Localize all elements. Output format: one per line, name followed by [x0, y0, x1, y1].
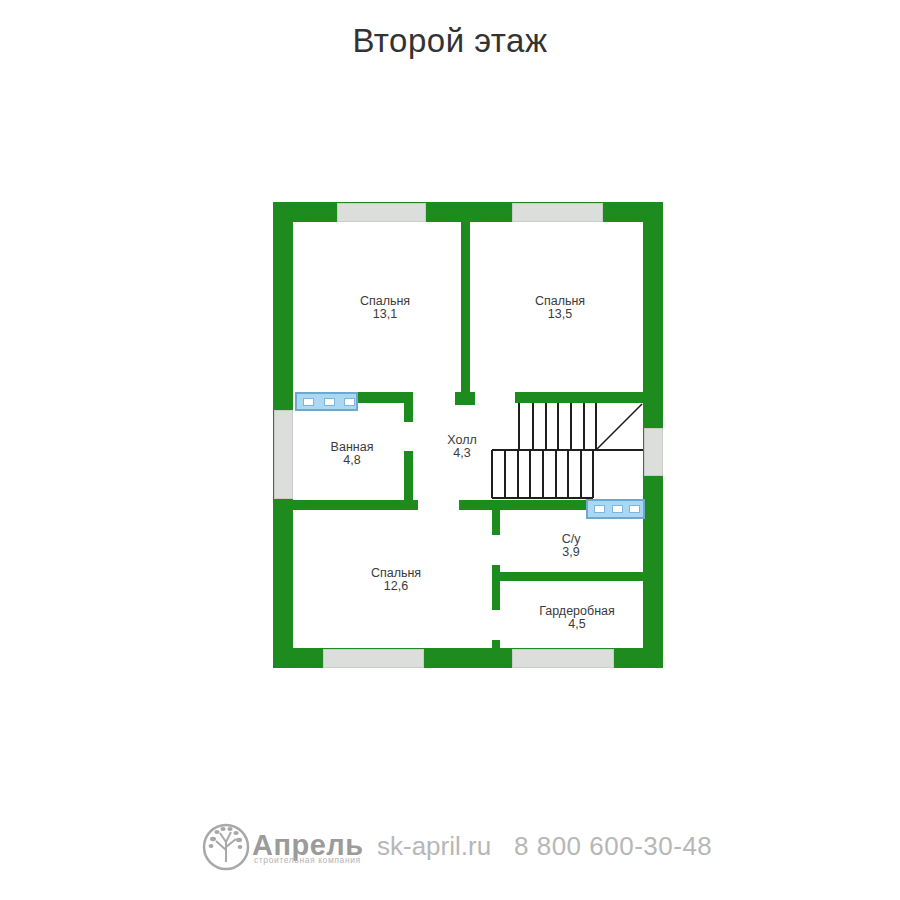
room-area: 13,5 [535, 308, 585, 321]
room-area: 4,8 [331, 454, 374, 467]
room-label-bathroom: Ванная 4,8 [331, 441, 374, 467]
stairs [492, 403, 643, 498]
room-label-wc: С/у 3,9 [562, 533, 581, 559]
room-label-bedroom-1: Спальня 13,1 [360, 295, 410, 321]
room-label-bedroom-2: Спальня 13,5 [535, 295, 585, 321]
room-area: 13,1 [360, 308, 410, 321]
window-sill-bathroom [296, 393, 357, 410]
brand-subtitle: строительная компания [254, 855, 361, 865]
website-text: sk-april.ru [377, 831, 491, 862]
room-area: 4,3 [447, 447, 476, 460]
room-label-wardrobe: Гардеробная 4,5 [539, 605, 615, 631]
phone-number: 8 800 600-30-48 [514, 831, 712, 862]
room-label-bedroom-3: Спальня 12,6 [371, 567, 421, 593]
tree-logo-icon [204, 825, 248, 869]
room-area: 3,9 [562, 546, 581, 559]
floor-plan-page: Второй этаж [0, 0, 900, 900]
room-area: 4,5 [539, 618, 615, 631]
room-area: 12,6 [371, 580, 421, 593]
window-sill-wc [587, 500, 644, 518]
room-label-hall: Холл 4,3 [447, 434, 476, 460]
